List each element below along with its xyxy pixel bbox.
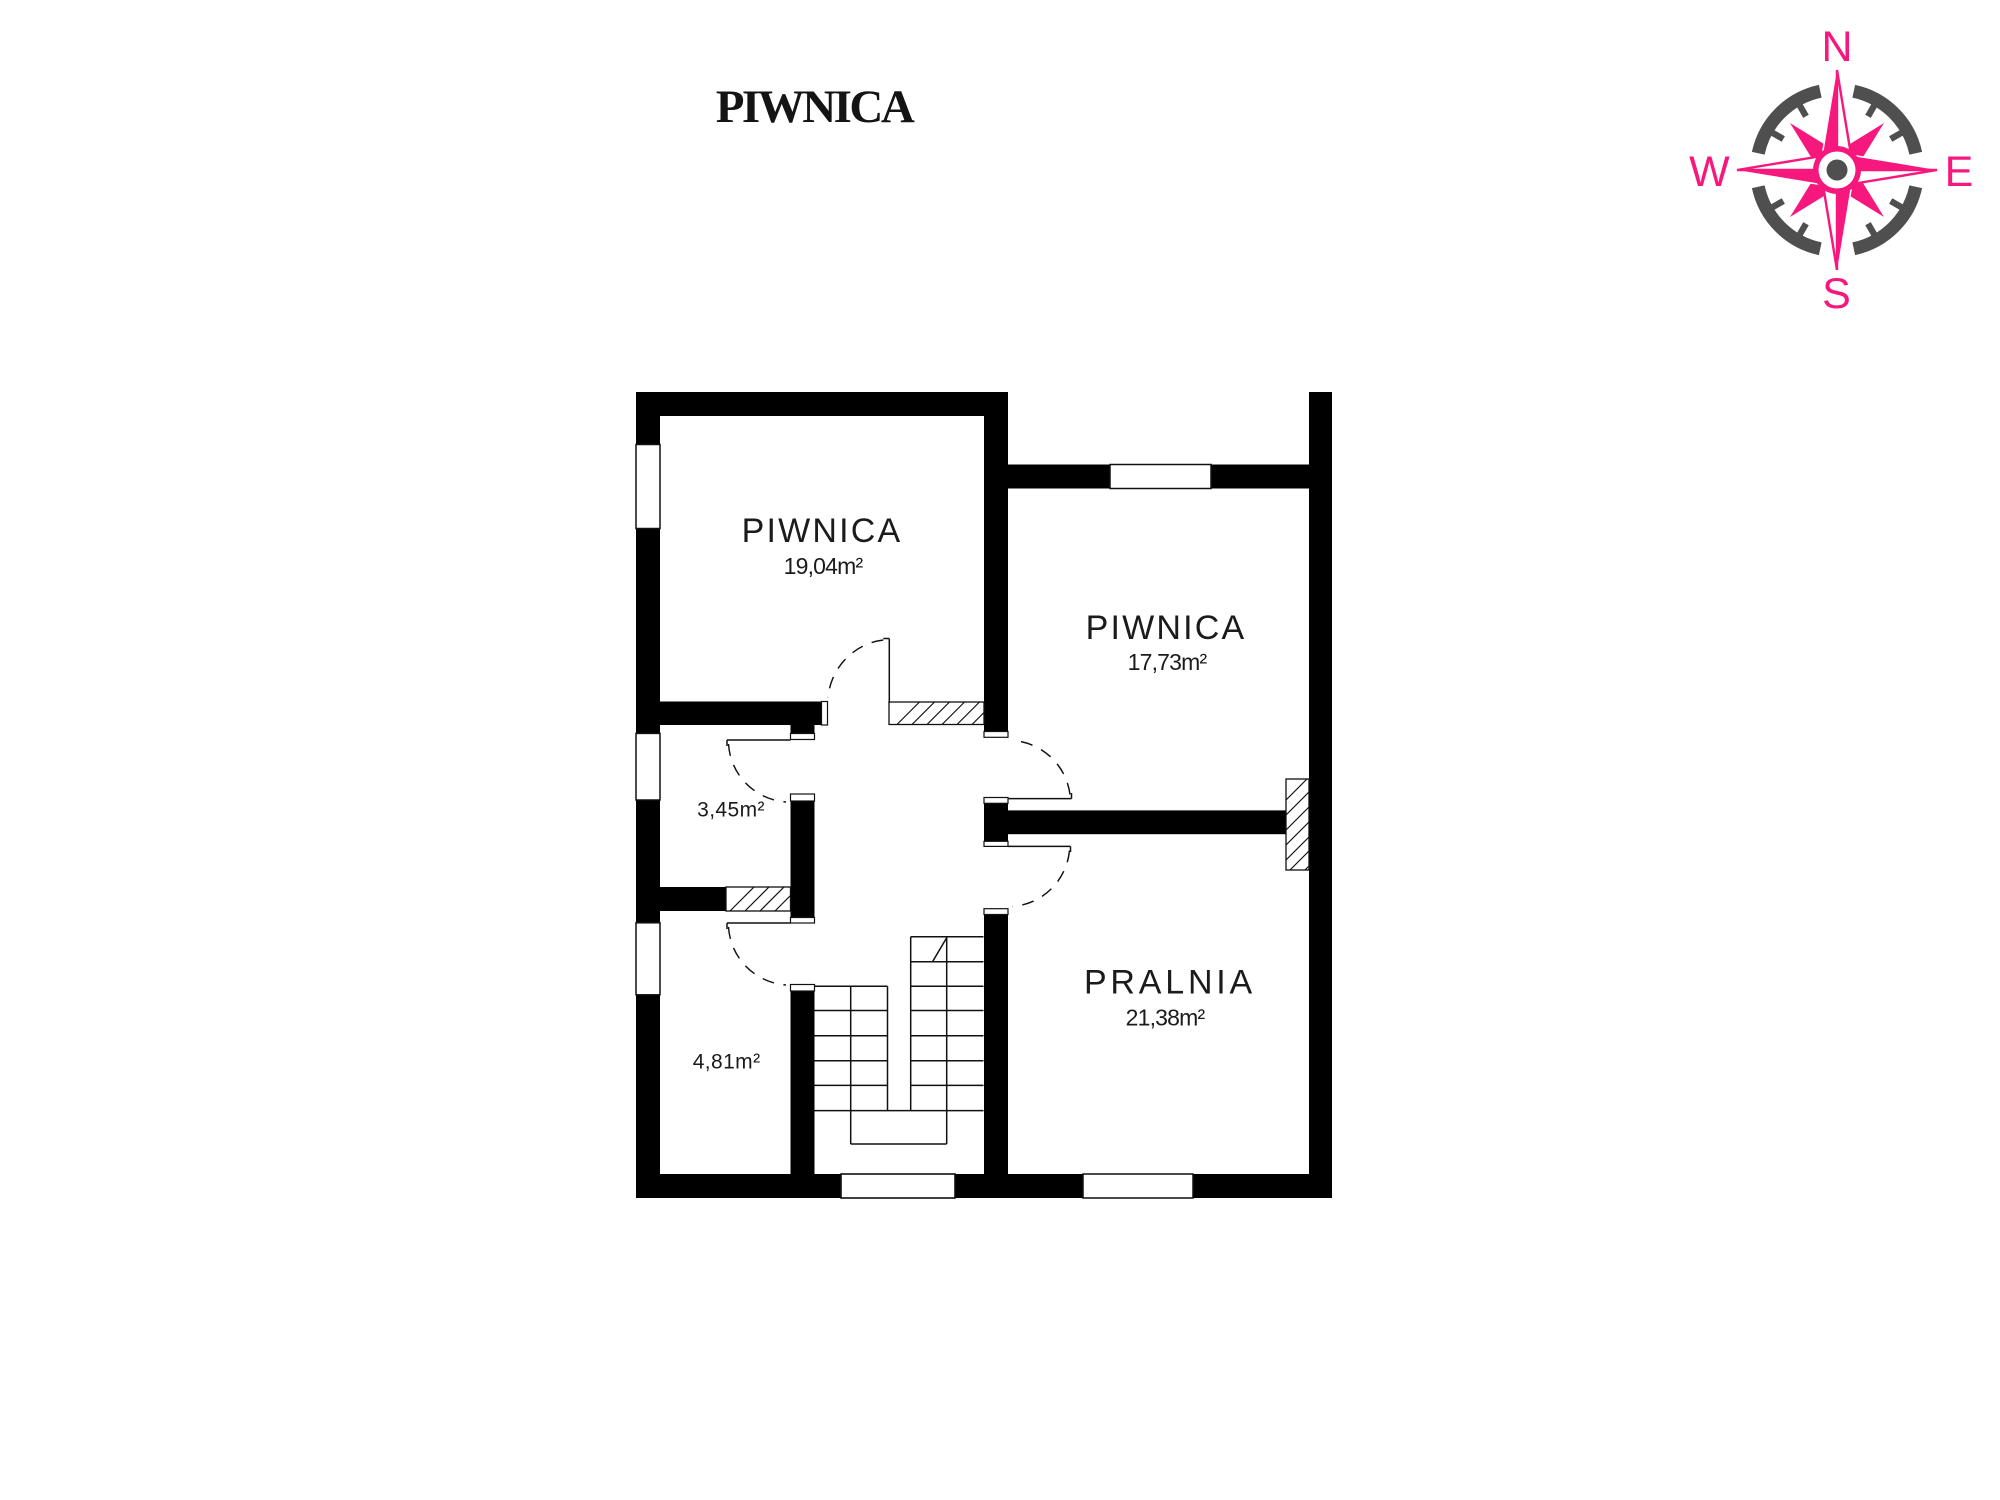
svg-text:E: E xyxy=(1945,148,1974,196)
svg-text:PIWNICA: PIWNICA xyxy=(1086,609,1247,647)
svg-text:4,81m²: 4,81m² xyxy=(693,1050,761,1073)
svg-text:17,73m²: 17,73m² xyxy=(1128,649,1208,675)
svg-text:W: W xyxy=(1689,148,1730,196)
svg-text:N: N xyxy=(1821,23,1852,71)
svg-text:19,04m²: 19,04m² xyxy=(784,553,864,579)
svg-text:PIWNICA: PIWNICA xyxy=(716,81,915,133)
svg-text:S: S xyxy=(1822,270,1851,318)
svg-text:3,45m²: 3,45m² xyxy=(697,798,765,821)
svg-text:PRALNIA: PRALNIA xyxy=(1084,963,1256,1001)
svg-text:PIWNICA: PIWNICA xyxy=(742,512,903,550)
svg-text:21,38m²: 21,38m² xyxy=(1126,1005,1206,1031)
